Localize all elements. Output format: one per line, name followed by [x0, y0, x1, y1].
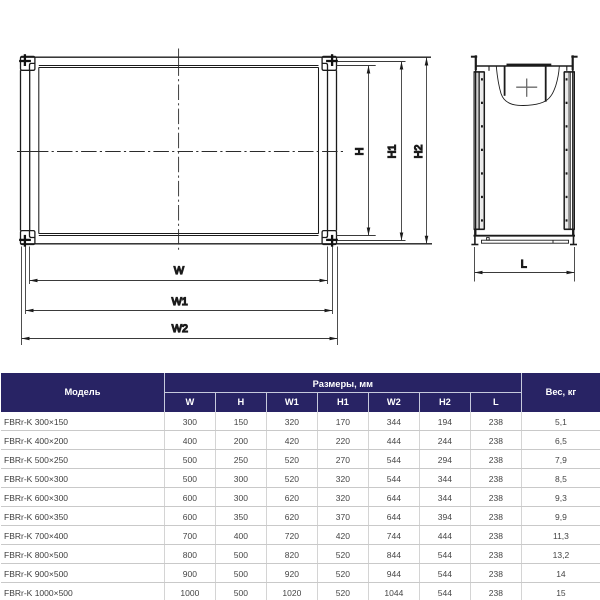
svg-text:W1: W1	[172, 296, 188, 308]
svg-text:H: H	[354, 148, 366, 156]
svg-text:W2: W2	[172, 323, 188, 335]
svg-text:H2: H2	[413, 145, 425, 159]
svg-text:W: W	[174, 265, 185, 277]
svg-text:H1: H1	[386, 145, 398, 159]
svg-text:L: L	[521, 258, 527, 270]
